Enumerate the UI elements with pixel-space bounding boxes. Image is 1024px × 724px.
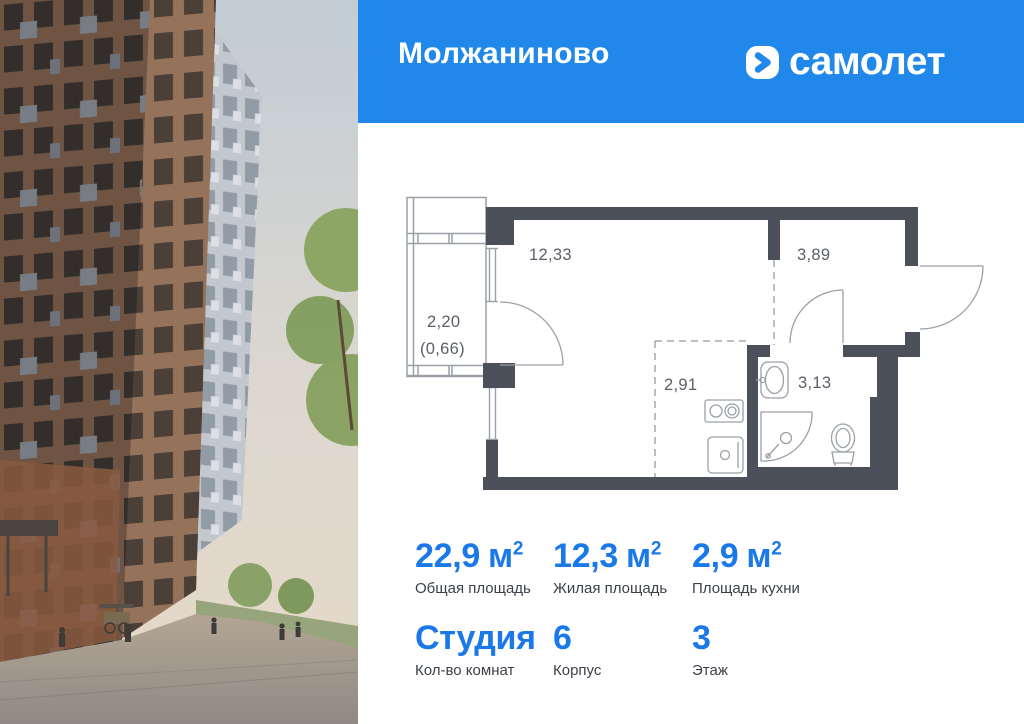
stat-rooms: Студия Кол-во комнат xyxy=(415,620,550,680)
cooktop xyxy=(705,400,743,422)
balcony-reduced-label: (0,66) xyxy=(420,340,465,358)
stat-label: Общая площадь xyxy=(415,580,550,598)
stat-living-area: 12,3м2 Жилая площадь xyxy=(553,538,688,598)
project-title: Молжаниново xyxy=(398,36,610,72)
stat-value: 3 xyxy=(692,620,827,656)
brand-logo: самолет xyxy=(746,40,945,84)
stat-kitchen-area: 2,9м2 Площадь кухни xyxy=(692,538,827,598)
stat-value: Студия xyxy=(415,620,550,656)
stat-label: Этаж xyxy=(692,662,827,680)
stat-value: 6 xyxy=(553,620,688,656)
windows xyxy=(486,248,498,440)
toilet xyxy=(832,424,855,466)
stat-label: Кол-во комнат xyxy=(415,662,550,680)
header: Молжаниново самолет xyxy=(358,0,1024,123)
stat-total-area: 22,9м2 Общая площадь xyxy=(415,538,550,598)
stat-label: Корпус xyxy=(553,662,688,680)
bathroom-label: 3,13 xyxy=(798,374,831,392)
washing-machine xyxy=(708,437,743,473)
living-room-label: 12,33 xyxy=(529,246,572,264)
building-photo-art xyxy=(0,0,358,724)
building-photo xyxy=(0,0,358,724)
samolet-logo-icon xyxy=(746,46,779,79)
stat-label: Площадь кухни xyxy=(692,580,827,598)
shower xyxy=(761,412,812,461)
floor-plan: 12,33 3,89 2,20 (0,66) 2,91 3,13 xyxy=(405,195,985,495)
brand-wordmark: самолет xyxy=(789,42,945,82)
stat-building: 6 Корпус xyxy=(553,620,688,680)
stat-value: 2,9м2 xyxy=(692,538,827,574)
kitchen-fixtures xyxy=(705,400,743,473)
balcony-label: 2,20 xyxy=(427,313,460,331)
hallway-label: 3,89 xyxy=(797,246,830,264)
sink xyxy=(756,362,788,398)
room-labels: 12,33 3,89 2,20 (0,66) 2,91 3,13 xyxy=(420,246,831,394)
stat-floor: 3 Этаж xyxy=(692,620,827,680)
stat-label: Жилая площадь xyxy=(553,580,688,598)
kitchen-label: 2,91 xyxy=(664,376,697,394)
stat-value: 22,9м2 xyxy=(415,538,550,574)
stat-value: 12,3м2 xyxy=(553,538,688,574)
